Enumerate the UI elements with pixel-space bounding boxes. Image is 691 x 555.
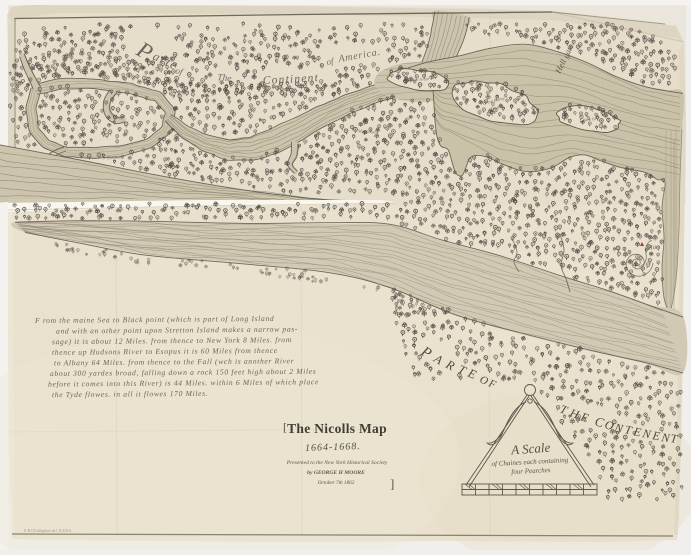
svg-text:by GEORGE H MOORE: by GEORGE H MOORE	[307, 470, 365, 476]
svg-text:The Nicolls Map: The Nicolls Map	[287, 421, 387, 436]
svg-text:Ho: Ho	[646, 243, 657, 252]
svg-text:The: The	[217, 73, 232, 84]
svg-text:Presented to the New York Hist: Presented to the New York Historical Soc…	[286, 460, 388, 466]
svg-text:E B OCallaghan del. N.Y.H.S.: E B OCallaghan del. N.Y.H.S.	[23, 528, 72, 533]
svg-text:N Haerlem: N Haerlem	[102, 155, 122, 161]
svg-text:October 7th 1862: October 7th 1862	[318, 480, 355, 486]
svg-text:]: ]	[390, 476, 394, 491]
svg-text:the Tyde flowes. in all it flo: the Tyde flowes. in all it flowes 170 Mi…	[52, 389, 208, 399]
svg-text:1664-1668.: 1664-1668.	[305, 441, 361, 454]
svg-text:A Scale: A Scale	[510, 440, 551, 458]
